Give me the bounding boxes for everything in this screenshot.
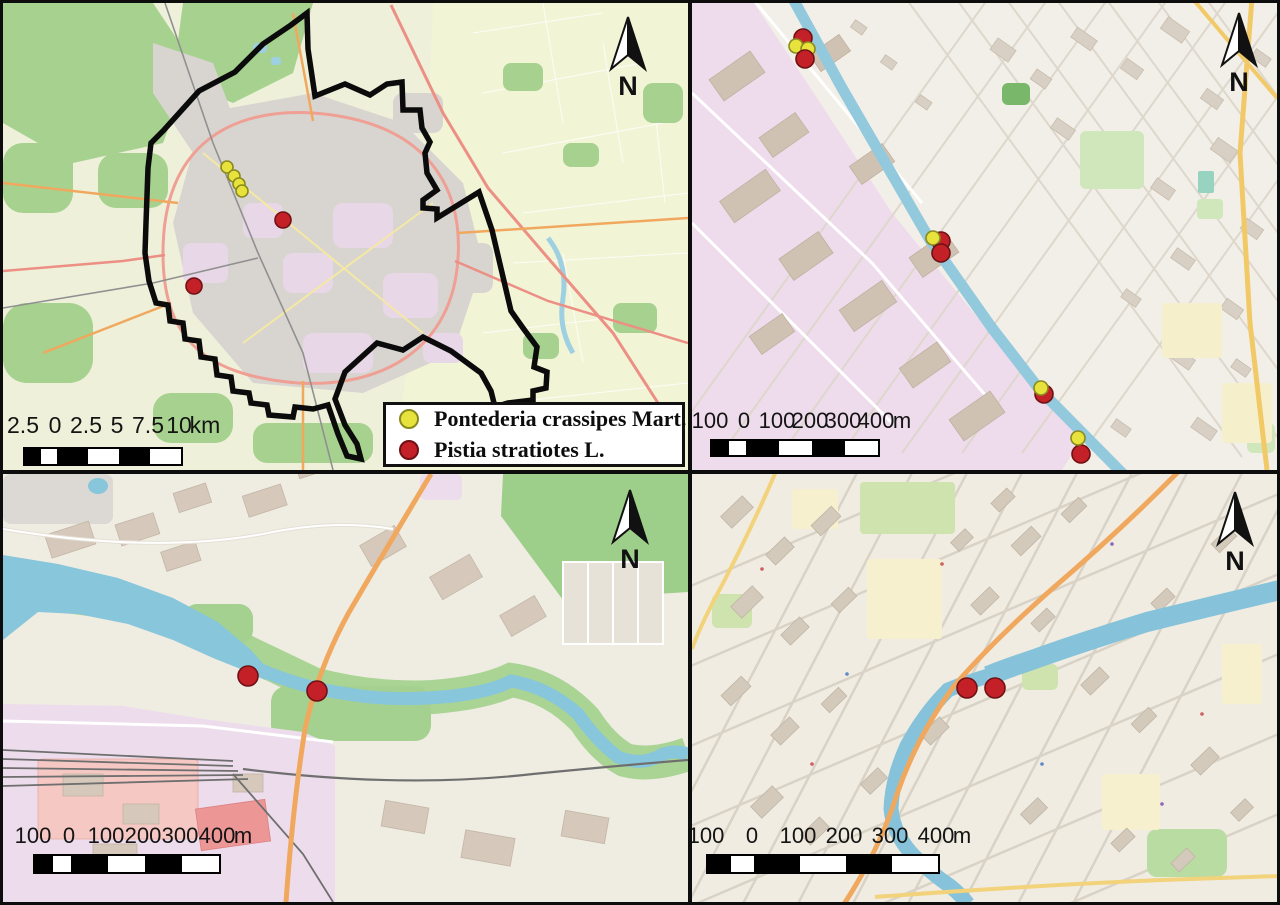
scale-bar-segment [846, 856, 892, 872]
north-label: N [618, 71, 638, 99]
scale-tick-label: 0 [49, 413, 62, 437]
scale-bar-segment [150, 449, 181, 464]
scale-bar-segments [710, 439, 880, 457]
scale-bar-segment [25, 449, 41, 464]
scale-tick-label: 7.5 [132, 413, 164, 437]
north-arrow: N [1214, 11, 1264, 95]
scale-bar-segment [35, 856, 53, 872]
north-arrow-icon [630, 490, 647, 542]
occurrence-point-pontederia [926, 231, 940, 245]
scale-bar-segment [182, 856, 219, 872]
scale-bar-segment [812, 441, 845, 455]
north-label: N [1229, 67, 1249, 95]
estate-block [563, 562, 663, 644]
scale-bar-segments [33, 854, 221, 874]
scale-tick-label: 2.5 [7, 413, 39, 437]
scale-bar-segments [706, 854, 940, 874]
north-arrow: N [1210, 490, 1260, 574]
occurrence-point-pistia [275, 212, 291, 228]
scale-tick-label: 200 [792, 409, 829, 433]
scale-bar-segment [892, 856, 938, 872]
north-label: N [1225, 546, 1245, 574]
scale-unit-label: m [234, 824, 252, 848]
scale-tick-label: 200 [826, 824, 863, 848]
map-canvas-overview [3, 3, 688, 470]
scale-bar-segment [108, 856, 145, 872]
north-arrow-icon [1222, 13, 1239, 65]
scale-tick-label: 0 [63, 824, 75, 848]
scale-tick-label: 100 [759, 409, 796, 433]
scale-tick-label: 300 [825, 409, 862, 433]
north-arrow-icon [1239, 13, 1256, 65]
scale-tick-label: 400 [199, 824, 236, 848]
species-swatch-pistia [399, 440, 419, 460]
scale-tick-label: 0 [746, 824, 758, 848]
scale-tick-label: 0 [738, 409, 750, 433]
pond [88, 478, 108, 494]
scale-bar-segment [800, 856, 846, 872]
occurrence-point-pistia [307, 681, 327, 701]
scale-tick-label: 300 [162, 824, 199, 848]
figure-root: N 2.502.557.510km Pontederia crassipes M… [0, 0, 1280, 905]
scale-bar-segment [708, 856, 731, 872]
legend-label: Pontederia crassipes Mart. [434, 406, 686, 432]
occurrence-point-pontederia [1034, 381, 1048, 395]
scale-bar-segment [119, 449, 150, 464]
scale-tick-label: 100 [780, 824, 817, 848]
scale-bar-segment [41, 449, 57, 464]
occurrence-point-pistia [1072, 445, 1090, 463]
panel-overview-map: N 2.502.557.510km Pontederia crassipes M… [3, 3, 688, 470]
scale-tick-label: 200 [125, 824, 162, 848]
scale-bar-segment [88, 449, 119, 464]
scale-tick-label: 300 [872, 824, 909, 848]
scale-bar-segment [845, 441, 878, 455]
scale-unit-label: m [893, 409, 911, 433]
scale-bar-segment [57, 449, 88, 464]
species-swatch-pontederia [399, 409, 419, 429]
north-label: N [620, 544, 640, 572]
panel-canal-map: N 1000100200300400m [692, 3, 1277, 470]
scale-tick-label: 10 [166, 413, 192, 437]
scale-bar-segment [754, 856, 800, 872]
occurrence-point-pistia [932, 244, 950, 262]
scale-bar-segment [779, 441, 812, 455]
scale-bar-segment [729, 441, 746, 455]
occurrence-point-pontederia [236, 185, 248, 197]
occurrence-point-pistia [985, 678, 1005, 698]
scale-tick-label: 100 [15, 824, 52, 848]
scale-unit-label: m [953, 824, 971, 848]
legend-label: Pistia stratiotes L. [434, 437, 604, 463]
occurrence-point-pistia [957, 678, 977, 698]
scale-tick-label: 100 [692, 824, 724, 848]
scale-bar-segment [71, 856, 108, 872]
occurrence-point-pistia [796, 50, 814, 68]
scale-tick-label: 2.5 [70, 413, 102, 437]
scale-tick-label: 100 [88, 824, 125, 848]
north-arrow: N [603, 15, 653, 99]
north-arrow: N [605, 488, 655, 572]
scale-tick-label: 100 [692, 409, 728, 433]
scale-tick-label: 400 [918, 824, 955, 848]
panel-river-west-map: N 1000100200300400m [3, 474, 688, 902]
scale-bar-segment [712, 441, 729, 455]
occurrence-point-pistia [186, 278, 202, 294]
scale-tick-label: 400 [858, 409, 895, 433]
scale-bar-segment [53, 856, 71, 872]
north-arrow-icon [611, 17, 628, 69]
legend-item: Pistia stratiotes L. [399, 437, 682, 463]
north-arrow-icon [628, 17, 645, 69]
scale-bar-segments [23, 447, 183, 466]
scale-bar-segment [746, 441, 779, 455]
scale-bar-segment [731, 856, 754, 872]
legend: Pontederia crassipes Mart. Pistia strati… [383, 402, 685, 467]
occurrence-point-pistia [238, 666, 258, 686]
map-canvas-canal [692, 3, 1277, 470]
legend-item: Pontederia crassipes Mart. [399, 406, 682, 432]
panel-river-center-map: N 1000100200300400m [692, 474, 1277, 902]
north-arrow-icon [613, 490, 630, 542]
scale-tick-label: 5 [111, 413, 124, 437]
scale-unit-label: km [190, 413, 221, 437]
north-arrow-icon [1235, 492, 1252, 544]
north-arrow-icon [1218, 492, 1235, 544]
occurrence-point-pontederia [1071, 431, 1085, 445]
scale-bar-segment [145, 856, 182, 872]
